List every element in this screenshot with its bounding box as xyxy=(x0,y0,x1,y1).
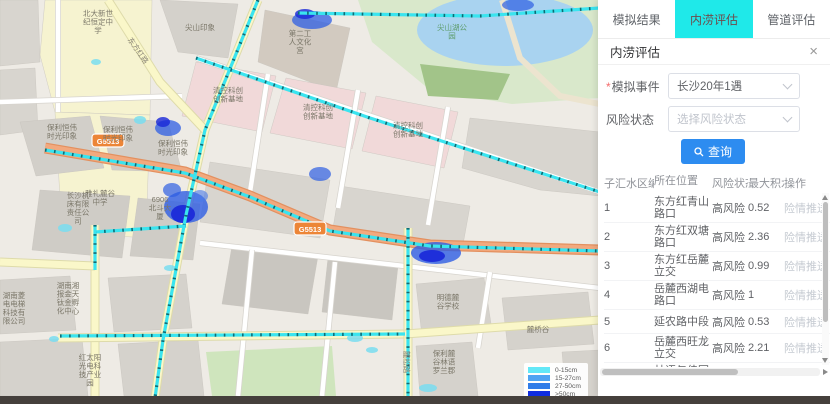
road xyxy=(0,262,95,266)
row-id: 3 xyxy=(604,260,654,272)
legend-item: 27-50cm xyxy=(528,382,582,390)
flood-blob xyxy=(366,347,378,353)
horizontal-scrollbar-thumb[interactable] xyxy=(602,369,738,375)
map-label: 清控科创创新基地 xyxy=(213,85,243,104)
push-alert-link[interactable]: 险情推送 xyxy=(784,340,824,356)
flood-blob xyxy=(164,265,176,271)
row-location: 岳麓西湖电路口 xyxy=(654,283,712,307)
row-max-depth: 2.21 xyxy=(748,342,784,354)
flood-blob xyxy=(419,250,445,262)
column-header: 操作 xyxy=(784,175,824,191)
row-risk-status: 高风险 xyxy=(712,340,748,356)
table-row[interactable]: 3东方红岳麓立交高风险0.99险情推送 xyxy=(604,252,830,281)
row-location: 东方红双塘路口 xyxy=(654,225,712,249)
flood-blob xyxy=(49,336,59,342)
flood-blob xyxy=(156,117,170,127)
form-row-risk: 风险状态 选择风险状态 xyxy=(606,106,820,132)
result-table: 子汇水区编号所在位置风险状态最大积水深操作 1东方红青山路口高风险0.52险情推… xyxy=(598,171,830,367)
row-risk-status: 高风险 xyxy=(712,258,748,274)
scroll-down-icon[interactable] xyxy=(822,358,828,363)
flood-blob xyxy=(58,224,72,232)
column-header: 风险状态 xyxy=(712,175,748,191)
map-label: 麓松路 xyxy=(402,351,412,374)
map-label: 湖南菱电电梯科技有限公司 xyxy=(3,290,26,326)
flood-blob xyxy=(419,384,437,392)
highway-badge: G5513 xyxy=(294,222,326,235)
row-max-depth: 0.52 xyxy=(748,202,784,214)
row-location: 林语与佳园路 xyxy=(654,365,712,367)
close-icon[interactable]: × xyxy=(809,44,818,59)
flood-blob xyxy=(91,59,101,65)
legend-swatch xyxy=(528,383,550,389)
map-label: 保利恒伟时光印象 xyxy=(47,122,77,141)
table-row[interactable]: 2东方红双塘路口高风险2.36险情推送 xyxy=(604,223,830,252)
flood-blob xyxy=(309,167,331,181)
push-alert-link[interactable]: 险情推送 xyxy=(784,200,824,216)
query-form: *模拟事件 长沙20年1遇 风险状态 选择风险状态 xyxy=(598,65,830,171)
map-label: 保利恒伟时光印象 xyxy=(103,124,133,143)
map-label: 湖南湘报金天钛金孵化中心 xyxy=(57,280,80,316)
legend-item: 15-27cm xyxy=(528,374,582,382)
row-risk-status: 高风险 xyxy=(712,287,748,303)
search-icon xyxy=(694,147,704,157)
app-root: G5513G5513北大新世纪恒定中学雅礼麓谷中学尖山印象第二工人文化宫尖山湖公… xyxy=(0,0,830,404)
city-block xyxy=(0,338,88,396)
table-row[interactable]: 5延农路中段高风险0.53险情推送 xyxy=(604,310,830,334)
legend-swatch xyxy=(528,375,550,381)
table-row[interactable]: 6岳麓西旺龙立交高风险2.21险情推送 xyxy=(604,334,830,363)
push-alert-link[interactable]: 险情推送 xyxy=(784,287,824,303)
required-mark: * xyxy=(606,80,611,94)
push-alert-link[interactable]: 险情推送 xyxy=(784,229,824,245)
search-button-label: 查询 xyxy=(708,143,732,160)
city-block xyxy=(108,274,192,332)
map-label: 清控科创创新基地 xyxy=(303,102,333,121)
row-location: 东方红岳麓立交 xyxy=(654,254,712,278)
table-body: 1东方红青山路口高风险0.52险情推送2东方红双塘路口高风险2.36险情推送3东… xyxy=(604,194,830,367)
row-id: 6 xyxy=(604,342,654,354)
tab-bar: 模拟结果内涝评估管道评估 xyxy=(598,0,830,39)
row-location: 东方红青山路口 xyxy=(654,196,712,220)
flood-blob xyxy=(192,190,208,202)
table-header: 子汇水区编号所在位置风险状态最大积水深操作 xyxy=(604,171,830,194)
risk-select[interactable]: 选择风险状态 xyxy=(668,106,800,132)
legend-swatch xyxy=(528,367,550,373)
legend-label: 27-50cm xyxy=(555,383,581,390)
row-max-depth: 0.99 xyxy=(748,260,784,272)
row-id: 2 xyxy=(604,231,654,243)
row-location: 延农路中段 xyxy=(654,316,712,328)
column-header: 所在位置 xyxy=(654,175,712,191)
horizontal-scrollbar[interactable] xyxy=(600,368,820,376)
scroll-up-icon[interactable] xyxy=(822,195,828,200)
column-header: 子汇水区编号 xyxy=(604,175,654,191)
push-alert-link[interactable]: 险情推送 xyxy=(784,258,824,274)
risk-select-placeholder: 选择风险状态 xyxy=(677,111,746,127)
flood-blob xyxy=(171,205,195,223)
map-label: 保利麓谷林语罗兰郡 xyxy=(433,348,456,375)
row-id: 5 xyxy=(604,316,654,328)
map-label: 尖山印象 xyxy=(185,22,215,32)
panel-footer-spacer xyxy=(598,376,830,396)
table-row[interactable]: 1东方红青山路口高风险0.52险情推送 xyxy=(604,194,830,223)
panel-title: 内涝评估 xyxy=(610,42,660,61)
highway-badge-label: G5513 xyxy=(299,225,322,234)
map-label: 保利恒伟时光印象 xyxy=(158,138,188,157)
risk-label: 风险状态 xyxy=(606,111,668,128)
city-block xyxy=(0,0,40,66)
vertical-scrollbar-thumb[interactable] xyxy=(823,202,828,322)
panel-header: 内涝评估 × xyxy=(598,39,830,65)
scroll-right-icon[interactable] xyxy=(823,369,828,375)
row-max-depth: 1 xyxy=(748,289,784,301)
row-risk-status: 高风险 xyxy=(712,229,748,245)
form-row-event: *模拟事件 长沙20年1遇 xyxy=(606,73,820,99)
row-risk-status: 高风险 xyxy=(712,200,748,216)
row-id: 4 xyxy=(604,289,654,301)
table-row[interactable]: 4岳麓西湖电路口高风险1险情推送 xyxy=(604,281,830,310)
chevron-down-icon xyxy=(783,80,793,90)
tab-pipeline-assessment[interactable]: 管道评估 xyxy=(753,0,830,38)
row-id: 1 xyxy=(604,202,654,214)
legend-label: 0-15cm xyxy=(555,367,577,374)
bottom-bar xyxy=(0,396,830,404)
row-location: 岳麓西旺龙立交 xyxy=(654,336,712,360)
row-max-depth: 2.36 xyxy=(748,231,784,243)
map-label: 麓桥谷 xyxy=(527,324,550,334)
event-select[interactable]: 长沙20年1遇 xyxy=(668,73,800,99)
map-label: 清控科创创新基地 xyxy=(393,120,423,139)
tab-waterlogging-assessment[interactable]: 内涝评估 xyxy=(675,0,752,38)
map-label: 明德麓谷学校 xyxy=(437,292,460,311)
legend-item: 0-15cm xyxy=(528,366,582,374)
search-button[interactable]: 查询 xyxy=(681,139,745,164)
assessment-panel: 模拟结果内涝评估管道评估 内涝评估 × *模拟事件 长沙20年1遇 风险状态 选… xyxy=(598,0,830,396)
row-max-depth: 0.53 xyxy=(748,316,784,328)
pipe-line xyxy=(60,334,405,336)
map-svg[interactable]: G5513G5513北大新世纪恒定中学雅礼麓谷中学尖山印象第二工人文化宫尖山湖公… xyxy=(0,0,600,404)
table-row[interactable]: 7林语与佳园路中风险0.26险情推送 xyxy=(604,363,830,367)
event-label: *模拟事件 xyxy=(606,78,668,95)
row-risk-status: 高风险 xyxy=(712,314,748,330)
flood-blob xyxy=(134,116,146,124)
column-header: 最大积水深 xyxy=(748,175,784,191)
legend-label: 15-27cm xyxy=(555,375,581,382)
tab-simulation-results[interactable]: 模拟结果 xyxy=(598,0,675,38)
event-select-value: 长沙20年1遇 xyxy=(677,78,742,94)
map-canvas[interactable]: G5513G5513北大新世纪恒定中学雅礼麓谷中学尖山印象第二工人文化宫尖山湖公… xyxy=(0,0,600,404)
green-area xyxy=(206,346,336,396)
chevron-down-icon xyxy=(783,113,793,123)
push-alert-link[interactable]: 险情推送 xyxy=(784,314,824,330)
vertical-scrollbar[interactable] xyxy=(822,193,829,365)
